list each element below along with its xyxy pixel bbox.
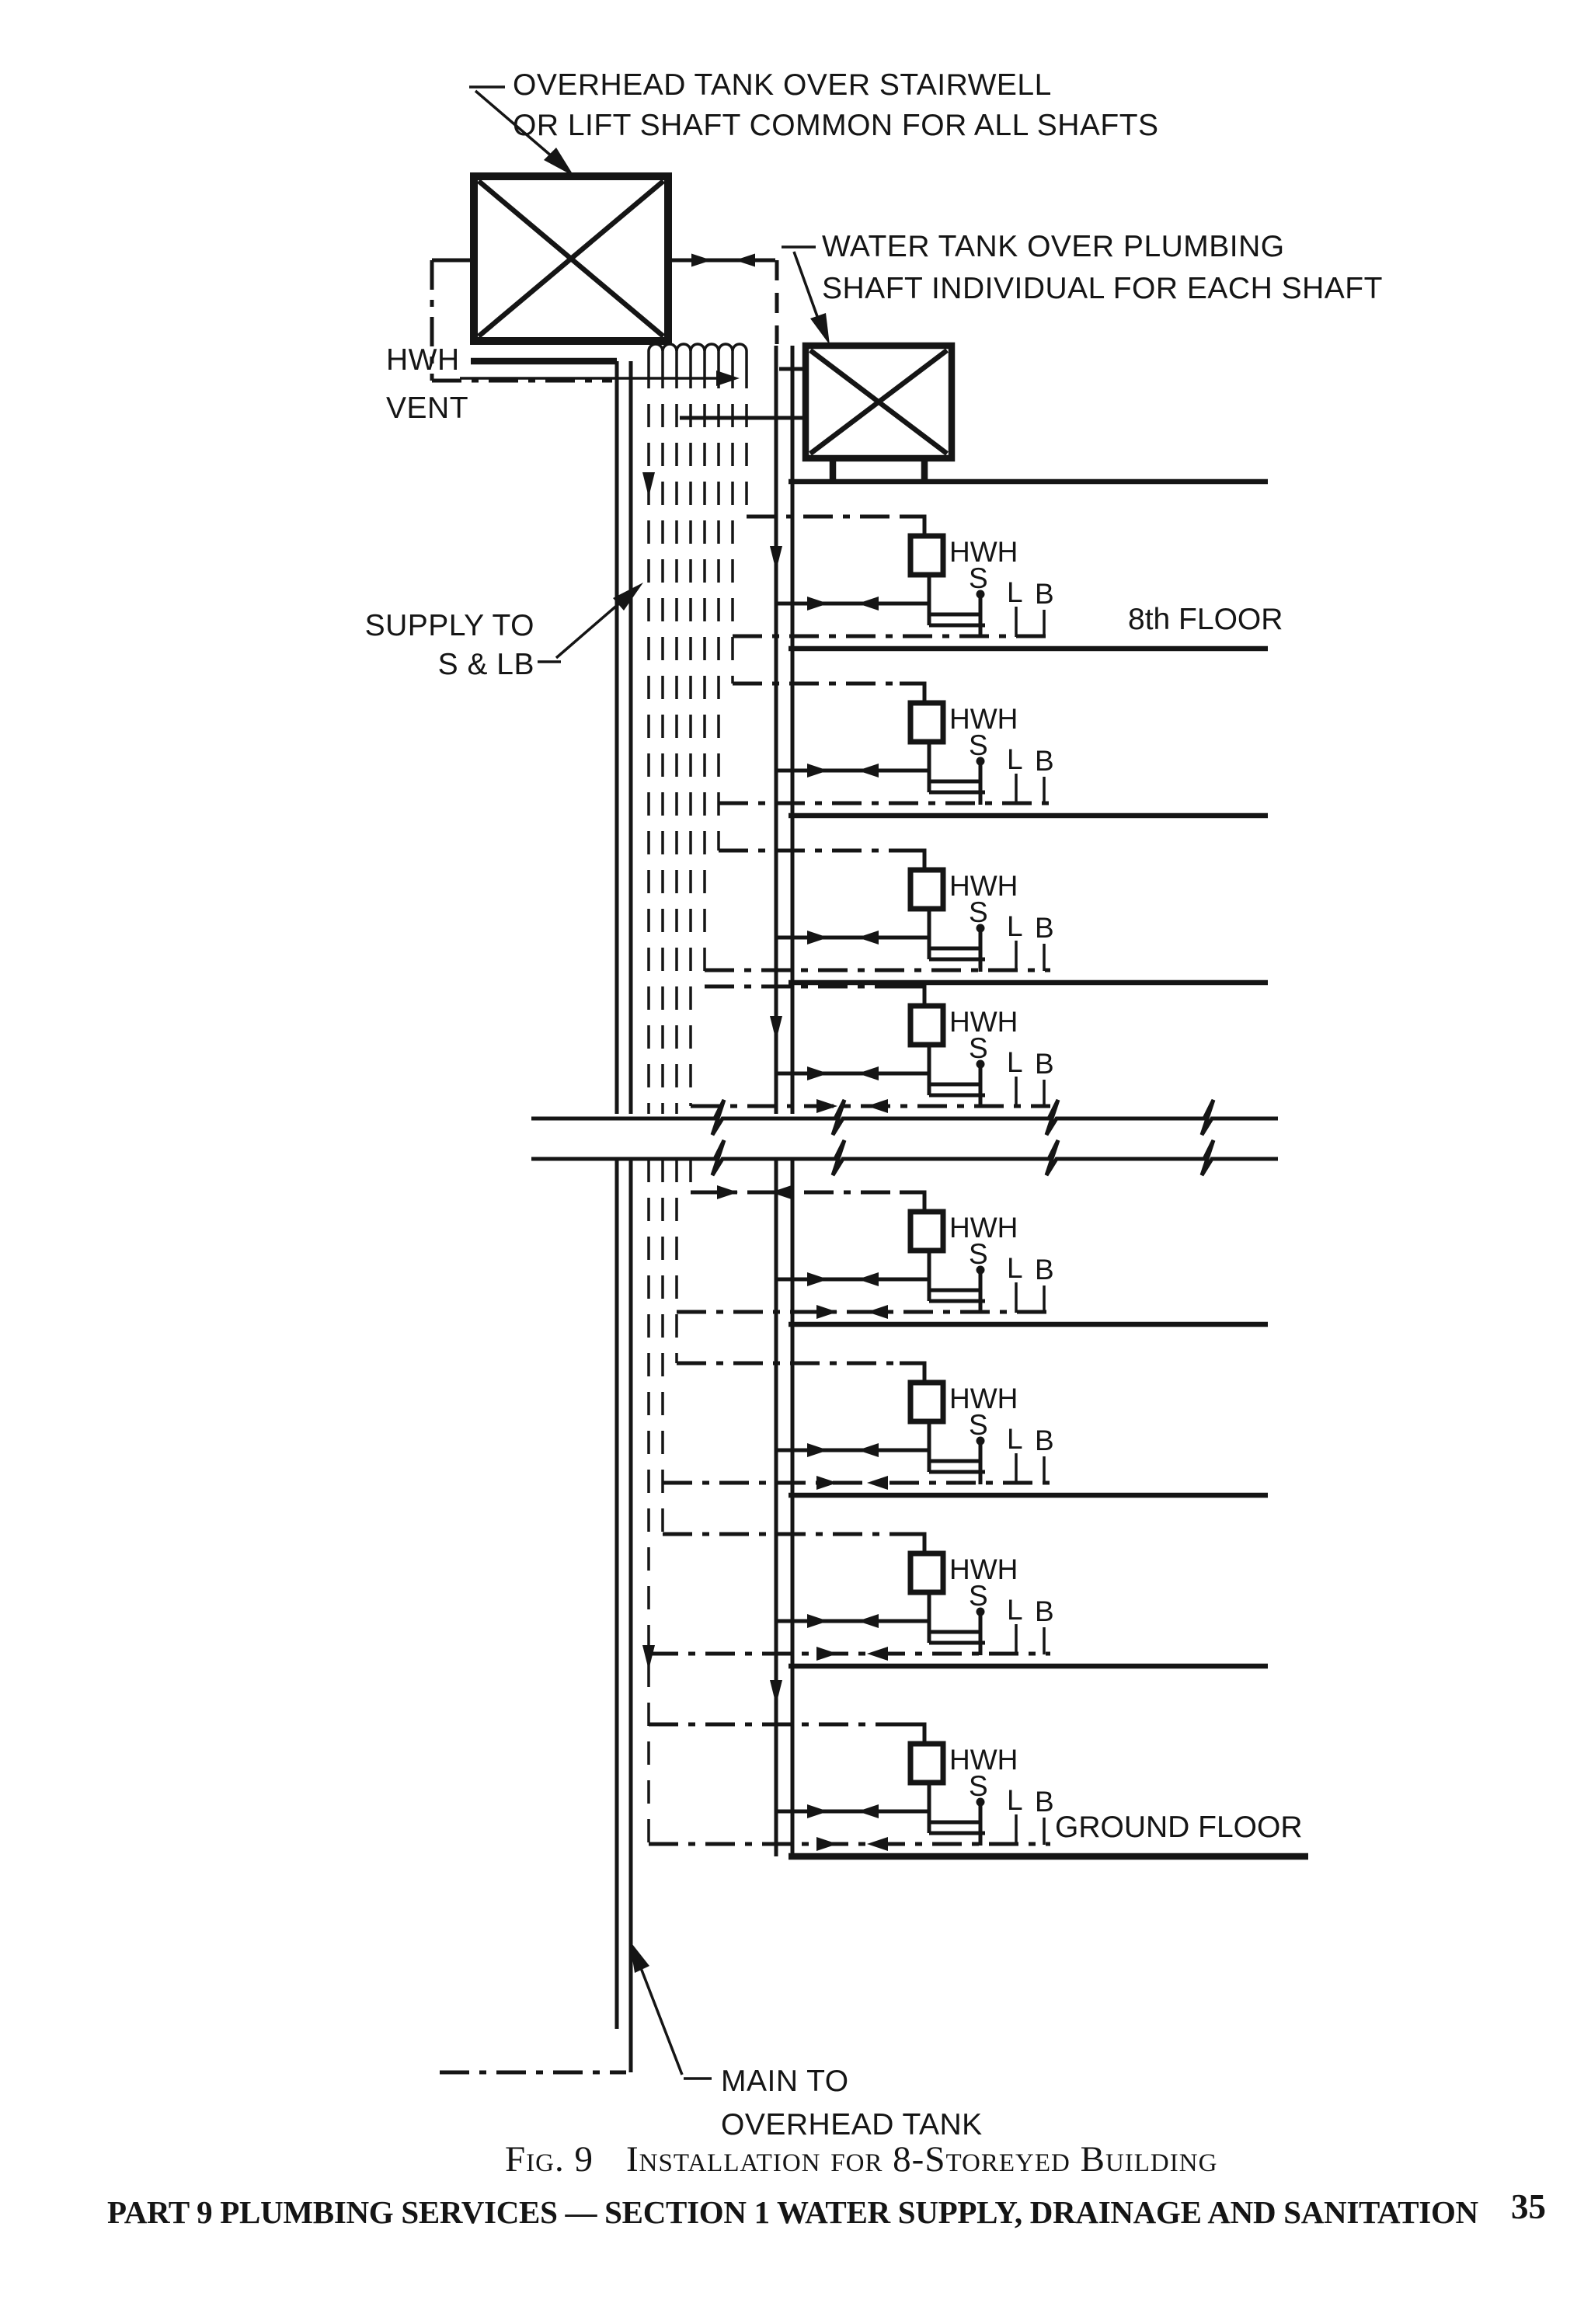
- sink-tap-icon: [977, 924, 985, 933]
- flow-arrow-icon: [807, 1272, 828, 1286]
- lavatory-label: L: [1007, 743, 1023, 775]
- vent-loop: [705, 344, 719, 351]
- flow-arrow-icon: [858, 1272, 879, 1286]
- flow-arrow-icon: [867, 1647, 888, 1661]
- bath-label: B: [1035, 1048, 1054, 1080]
- supply-label-2: S & LB: [438, 648, 534, 681]
- floor-unit-5th-floor-break: HWHSLB: [691, 986, 1054, 1113]
- vent-loop: [649, 344, 663, 351]
- caption: Fig. 9 Installation for 8-Storeyed Build…: [505, 2139, 1217, 2180]
- hot-supply-elbow: [900, 1192, 924, 1212]
- bath-label: B: [1035, 912, 1054, 944]
- bath-label: B: [1035, 745, 1054, 777]
- overhead-tank-label: OVERHEAD TANK OVER STAIRWELL: [513, 68, 1052, 102]
- lavatory-label: L: [1007, 910, 1023, 942]
- water-heater: [910, 703, 943, 742]
- hot-supply-elbow: [900, 986, 924, 1006]
- hwh-vent-pipe: [460, 371, 740, 386]
- flow-arrow-icon: [867, 1099, 888, 1113]
- break-lines: [531, 1100, 1278, 1175]
- sink-label: S: [969, 729, 988, 761]
- flow-arrow-icon: [816, 1305, 837, 1319]
- hot-supply-elbow: [900, 1363, 924, 1383]
- hwh-vent-label-2: VENT: [386, 391, 468, 425]
- sink-label: S: [969, 1770, 988, 1802]
- flow-arrow-icon: [867, 1476, 888, 1490]
- overhead-tank: [474, 176, 668, 341]
- shaft-riser-bundle: [649, 344, 747, 1844]
- floor-unit-6th-floor: HWHSLB: [705, 851, 1268, 983]
- flow-arrow-icon: [807, 1804, 828, 1818]
- flow-arrow-icon: [807, 597, 828, 611]
- bath-label: B: [1035, 1254, 1054, 1286]
- vent-loop: [719, 344, 733, 351]
- bath-label: B: [1035, 1786, 1054, 1818]
- sink-label: S: [969, 562, 988, 594]
- water-heater: [910, 1212, 943, 1251]
- flow-arrow-icon: [807, 1614, 828, 1628]
- flow-arrow-icon: [807, 1443, 828, 1457]
- flow-arrow-icon: [867, 1305, 888, 1319]
- sink-tap-icon: [977, 1798, 985, 1807]
- water-tank: [680, 346, 952, 480]
- flow-arrow-icon: [858, 1066, 879, 1080]
- flow-arrow-icon: [807, 1066, 828, 1080]
- bath-label: B: [1035, 1595, 1054, 1627]
- figure-number: Fig. 9: [505, 2139, 594, 2180]
- lavatory-label: L: [1007, 576, 1023, 608]
- vent-loop: [677, 344, 691, 351]
- lavatory-label: L: [1007, 1252, 1023, 1284]
- lavatory-label: L: [1007, 1594, 1023, 1626]
- hot-supply-elbow: [900, 1724, 924, 1744]
- sink-tap-icon: [977, 757, 985, 766]
- sink-label: S: [969, 1580, 988, 1612]
- overhead-tank-label-2: OR LIFT SHAFT COMMON FOR ALL SHAFTS: [513, 109, 1159, 142]
- water-heater: [910, 1553, 943, 1592]
- bath-label: B: [1035, 1425, 1054, 1456]
- sink-tap-icon: [977, 1060, 985, 1069]
- supply-label: SUPPLY TO: [365, 609, 534, 642]
- flow-arrow-icon: [816, 1476, 837, 1490]
- hot-supply-elbow: [900, 851, 924, 870]
- flow-arrow-icon: [771, 1185, 792, 1199]
- footer-text: PART 9 PLUMBING SERVICES — SECTION 1 WAT…: [107, 2194, 1479, 2230]
- flow-arrow-icon: [816, 1099, 837, 1113]
- water-heater: [910, 1006, 943, 1045]
- flow-arrow-icon: [858, 1804, 879, 1818]
- lavatory-label: L: [1007, 1423, 1023, 1455]
- flow-arrow-icon: [717, 1185, 738, 1199]
- sink-label: S: [969, 1409, 988, 1441]
- flow-arrow-icon: [807, 931, 828, 945]
- page-number: 35: [1511, 2187, 1546, 2226]
- flow-arrow-icon: [867, 1837, 888, 1851]
- flow-arrow-icon: [858, 597, 879, 611]
- hwh-vent-label: HWH: [386, 343, 460, 377]
- flow-arrow-icon: [816, 1647, 837, 1661]
- sink-tap-icon: [977, 1608, 985, 1616]
- water-heater: [910, 1383, 943, 1421]
- sink-label: S: [969, 1032, 988, 1064]
- flow-arrow-icon: [807, 764, 828, 778]
- bath-label: B: [1035, 578, 1054, 610]
- flow-arrow-icon: [858, 931, 879, 945]
- floor-label-8th-floor: 8th FLOOR: [1128, 603, 1283, 636]
- floor-unit-7th-floor: HWHSLB: [719, 684, 1268, 816]
- water-tank-label-2: SHAFT INDIVIDUAL FOR EACH SHAFT: [822, 272, 1383, 305]
- water-heater: [910, 536, 943, 575]
- water-heater: [910, 1744, 943, 1783]
- hot-supply-elbow: [900, 684, 924, 703]
- hot-supply-elbow: [900, 1534, 924, 1553]
- floor-unit-2nd-floor: HWHSLB: [663, 1363, 1268, 1495]
- floor-unit-ground-floor: HWHSLBGROUND FLOOR: [649, 1724, 1308, 1856]
- figure-title: Installation for 8-Storeyed Building: [626, 2139, 1217, 2180]
- flow-arrow-icon: [816, 1837, 837, 1851]
- hot-supply-elbow: [900, 517, 924, 536]
- floor-unit-1st-floor: HWHSLB: [649, 1534, 1268, 1666]
- installation-diagram: HWHSLB8th FLOORHWHSLBHWHSLBHWHSLBHWHSLBH…: [0, 0, 1591, 2324]
- scanned-document-page: HWHSLB8th FLOORHWHSLBHWHSLBHWHSLBHWHSLBH…: [0, 0, 1591, 2324]
- sink-label: S: [969, 1238, 988, 1270]
- water-tank-label: WATER TANK OVER PLUMBING: [822, 230, 1285, 263]
- floor-label-ground-floor: GROUND FLOOR: [1055, 1811, 1303, 1844]
- page-footer: PART 9 PLUMBING SERVICES — SECTION 1 WAT…: [107, 2187, 1546, 2230]
- flow-arrow-icon: [858, 1614, 879, 1628]
- sink-tap-icon: [977, 1437, 985, 1446]
- main-label: MAIN TO: [721, 2065, 849, 2098]
- sink-tap-icon: [977, 1266, 985, 1275]
- sink-tap-icon: [977, 590, 985, 599]
- sink-label: S: [969, 896, 988, 928]
- main-label-2: OVERHEAD TANK: [721, 2108, 983, 2141]
- flow-arrow-icon: [858, 764, 879, 778]
- flow-arrow-icon: [858, 1443, 879, 1457]
- floor-unit-8th-floor: HWHSLB8th FLOOR: [733, 517, 1283, 649]
- vent-loop: [691, 344, 705, 351]
- floor-unit-3rd-floor: HWHSLB: [677, 1185, 1268, 1324]
- vent-loop: [733, 344, 747, 351]
- floor-units: HWHSLB8th FLOORHWHSLBHWHSLBHWHSLBHWHSLBH…: [649, 517, 1308, 1856]
- lavatory-label: L: [1007, 1784, 1023, 1816]
- water-heater: [910, 870, 943, 909]
- vent-loop: [663, 344, 677, 351]
- lavatory-label: L: [1007, 1046, 1023, 1078]
